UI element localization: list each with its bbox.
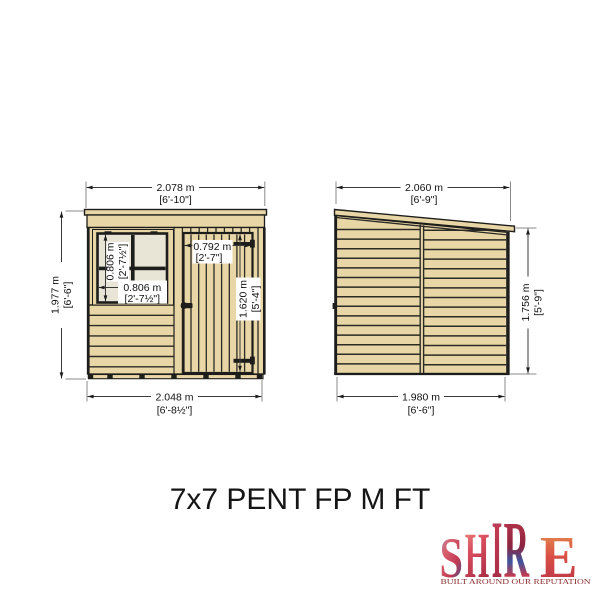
- svg-text:[6'-6"]: [6'-6"]: [408, 404, 435, 416]
- svg-text:2.078 m: 2.078 m: [157, 182, 195, 194]
- svg-text:2.048 m: 2.048 m: [156, 391, 194, 403]
- svg-text:[6'-9"]: [6'-9"]: [411, 194, 438, 206]
- svg-text:0.792 m: 0.792 m: [193, 241, 231, 253]
- svg-text:2.060 m: 2.060 m: [405, 182, 443, 194]
- svg-text:[2'-7"]: [2'-7"]: [196, 252, 223, 264]
- svg-text:1.977 m: 1.977 m: [50, 276, 62, 314]
- svg-text:[5'-4"]: [5'-4"]: [250, 286, 262, 313]
- svg-text:1.980 m: 1.980 m: [402, 391, 440, 403]
- svg-text:1.620 m: 1.620 m: [238, 280, 250, 318]
- svg-text:[2'-7½"]: [2'-7½"]: [117, 244, 129, 280]
- svg-text:[5'-9"]: [5'-9"]: [533, 289, 545, 316]
- svg-text:[6'-6"]: [6'-6"]: [62, 282, 74, 309]
- svg-text:[6'-8½"]: [6'-8½"]: [157, 404, 193, 416]
- svg-text:[6'-10"]: [6'-10"]: [159, 194, 192, 206]
- svg-text:0.806 m: 0.806 m: [105, 242, 117, 280]
- svg-text:[2'-7½"]: [2'-7½"]: [125, 293, 161, 305]
- svg-text:7x7 PENT FP M FT: 7x7 PENT FP M FT: [170, 483, 431, 516]
- svg-text:BUILT AROUND OUR REPUTATION: BUILT AROUND OUR REPUTATION: [441, 578, 592, 586]
- svg-text:1.756 m: 1.756 m: [520, 283, 532, 321]
